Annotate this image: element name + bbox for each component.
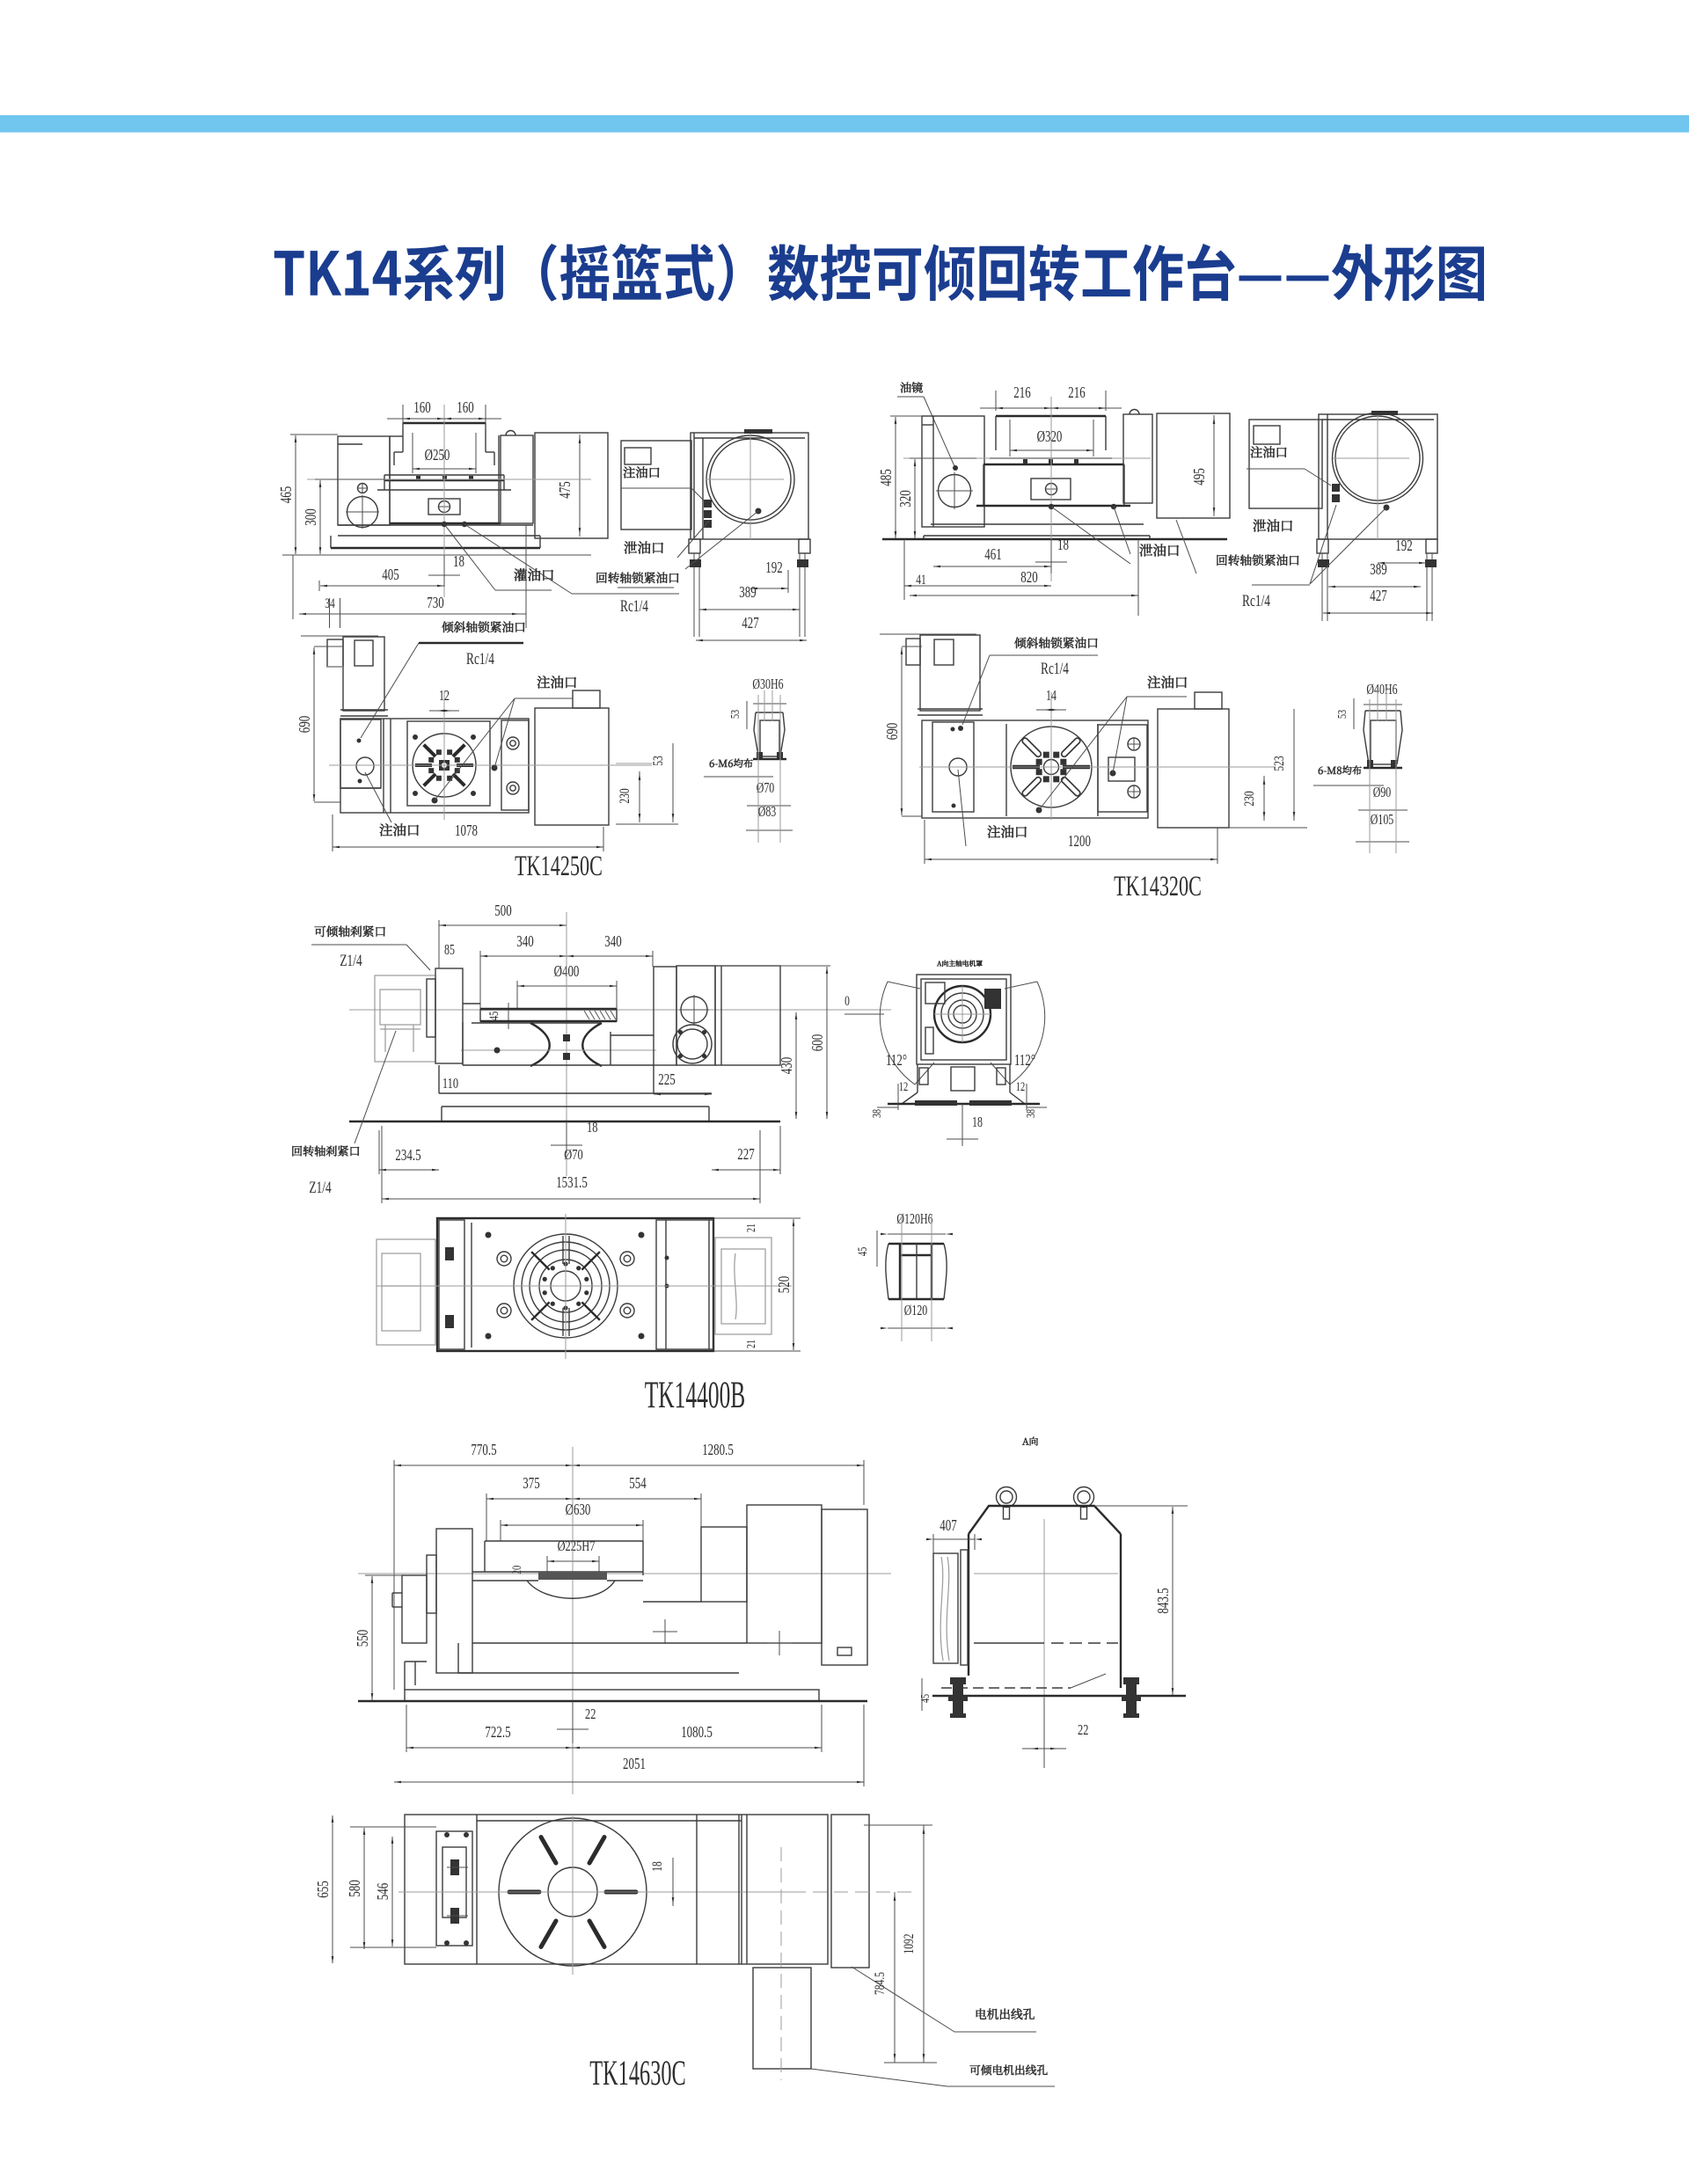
svg-text:320: 320	[897, 490, 915, 508]
svg-text:500: 500	[494, 902, 512, 920]
svg-text:475: 475	[557, 481, 574, 499]
svg-text:Rc1/4: Rc1/4	[620, 597, 648, 616]
svg-text:407: 407	[940, 1517, 957, 1535]
svg-text:2051: 2051	[623, 1756, 646, 1773]
svg-text:389: 389	[739, 584, 757, 602]
svg-text:1092: 1092	[902, 1933, 917, 1954]
svg-text:TK14250C: TK14250C	[515, 851, 603, 882]
svg-text:340: 340	[604, 933, 622, 951]
svg-text:722.5: 722.5	[485, 1724, 510, 1742]
svg-text:820: 820	[1020, 569, 1038, 587]
svg-text:600: 600	[809, 1034, 827, 1052]
svg-text:Ø105: Ø105	[1371, 812, 1394, 828]
svg-text:Ø90: Ø90	[1373, 785, 1392, 800]
svg-text:216: 216	[1068, 384, 1086, 402]
svg-text:784.5: 784.5	[873, 1972, 888, 1995]
svg-text:730: 730	[427, 595, 444, 612]
svg-text:Ø40H6: Ø40H6	[1366, 682, 1397, 698]
svg-text:192: 192	[1395, 537, 1412, 555]
svg-text:1280.5: 1280.5	[702, 1442, 734, 1459]
svg-text:Z1/4: Z1/4	[309, 1179, 331, 1197]
svg-text:520: 520	[776, 1276, 793, 1294]
svg-text:Rc1/4: Rc1/4	[466, 650, 494, 668]
svg-text:427: 427	[742, 615, 759, 632]
svg-text:Rc1/4: Rc1/4	[1242, 592, 1270, 610]
svg-text:41: 41	[916, 573, 926, 588]
svg-text:690: 690	[884, 723, 902, 741]
svg-text:160: 160	[457, 399, 474, 417]
svg-text:12: 12	[1016, 1079, 1026, 1093]
svg-text:85: 85	[444, 942, 455, 958]
svg-text:234.5: 234.5	[395, 1147, 420, 1165]
svg-text:18: 18	[587, 1120, 597, 1136]
svg-text:18: 18	[650, 1861, 665, 1872]
svg-text:192: 192	[765, 559, 782, 577]
svg-text:45: 45	[918, 1694, 932, 1703]
svg-text:TK14400B: TK14400B	[645, 1373, 746, 1416]
svg-text:690: 690	[296, 716, 314, 734]
svg-text:18: 18	[453, 553, 464, 571]
svg-text:112°: 112°	[886, 1052, 907, 1070]
svg-text:Ø70: Ø70	[757, 780, 775, 796]
svg-text:427: 427	[1370, 588, 1387, 605]
svg-text:Ø83: Ø83	[758, 804, 777, 820]
svg-text:160: 160	[413, 399, 431, 417]
svg-text:45: 45	[855, 1247, 869, 1257]
svg-text:430: 430	[779, 1057, 796, 1075]
svg-text:1080.5: 1080.5	[681, 1724, 713, 1742]
svg-text:112°: 112°	[1014, 1052, 1035, 1070]
svg-text:14: 14	[1046, 688, 1057, 704]
svg-text:22: 22	[1078, 1722, 1088, 1738]
svg-text:12: 12	[439, 688, 450, 704]
svg-text:554: 554	[629, 1475, 647, 1493]
svg-text:110: 110	[442, 1076, 458, 1092]
svg-text:655: 655	[315, 1881, 333, 1898]
svg-text:18: 18	[972, 1114, 983, 1130]
svg-text:340: 340	[516, 933, 534, 951]
svg-text:Rc1/4: Rc1/4	[1041, 660, 1069, 678]
svg-text:45: 45	[486, 1012, 501, 1021]
svg-text:225: 225	[658, 1071, 676, 1089]
svg-text:465: 465	[278, 486, 296, 504]
svg-text:21: 21	[743, 1223, 757, 1232]
svg-text:405: 405	[382, 566, 399, 584]
svg-text:389: 389	[1370, 561, 1387, 579]
svg-text:227: 227	[737, 1146, 755, 1164]
svg-text:1200: 1200	[1068, 833, 1091, 851]
svg-text:1531.5: 1531.5	[556, 1174, 588, 1192]
svg-text:Ø120: Ø120	[904, 1303, 928, 1318]
svg-text:18: 18	[1057, 537, 1069, 554]
svg-text:Ø120H6: Ø120H6	[896, 1211, 932, 1227]
svg-text:550: 550	[355, 1630, 372, 1647]
svg-text:495: 495	[1191, 468, 1209, 486]
svg-text:523: 523	[1272, 756, 1287, 771]
svg-text:TK14320C: TK14320C	[1114, 871, 1202, 902]
svg-text:53: 53	[651, 756, 666, 766]
svg-text:216: 216	[1013, 384, 1031, 402]
svg-text:843.5: 843.5	[1155, 1588, 1173, 1613]
svg-text:485: 485	[878, 469, 896, 486]
svg-text:Ø70: Ø70	[564, 1147, 582, 1163]
svg-text:21: 21	[743, 1340, 757, 1348]
svg-text:770.5: 770.5	[471, 1442, 496, 1459]
svg-text:Z1/4: Z1/4	[340, 952, 362, 970]
svg-text:230: 230	[618, 788, 632, 803]
svg-text:580: 580	[347, 1880, 364, 1897]
svg-text:0: 0	[844, 994, 850, 1009]
svg-text:53: 53	[1334, 710, 1349, 719]
svg-text:53: 53	[728, 710, 742, 719]
svg-text:22: 22	[585, 1706, 596, 1722]
svg-text:34: 34	[325, 596, 335, 611]
svg-text:38: 38	[869, 1109, 883, 1118]
svg-text:Ø250: Ø250	[425, 447, 450, 464]
svg-text:Ø30H6: Ø30H6	[752, 676, 783, 692]
svg-text:38: 38	[1023, 1109, 1037, 1118]
svg-text:Ø320: Ø320	[1037, 428, 1063, 446]
svg-text:375: 375	[523, 1475, 540, 1493]
svg-text:230: 230	[1242, 791, 1257, 806]
svg-text:546: 546	[375, 1883, 392, 1901]
svg-text:Ø630: Ø630	[566, 1501, 591, 1519]
svg-text:12: 12	[899, 1079, 909, 1093]
svg-text:461: 461	[984, 546, 1001, 564]
svg-text:TK14630C: TK14630C	[589, 2054, 686, 2093]
svg-text:300: 300	[303, 508, 320, 526]
svg-text:1078: 1078	[455, 822, 478, 840]
